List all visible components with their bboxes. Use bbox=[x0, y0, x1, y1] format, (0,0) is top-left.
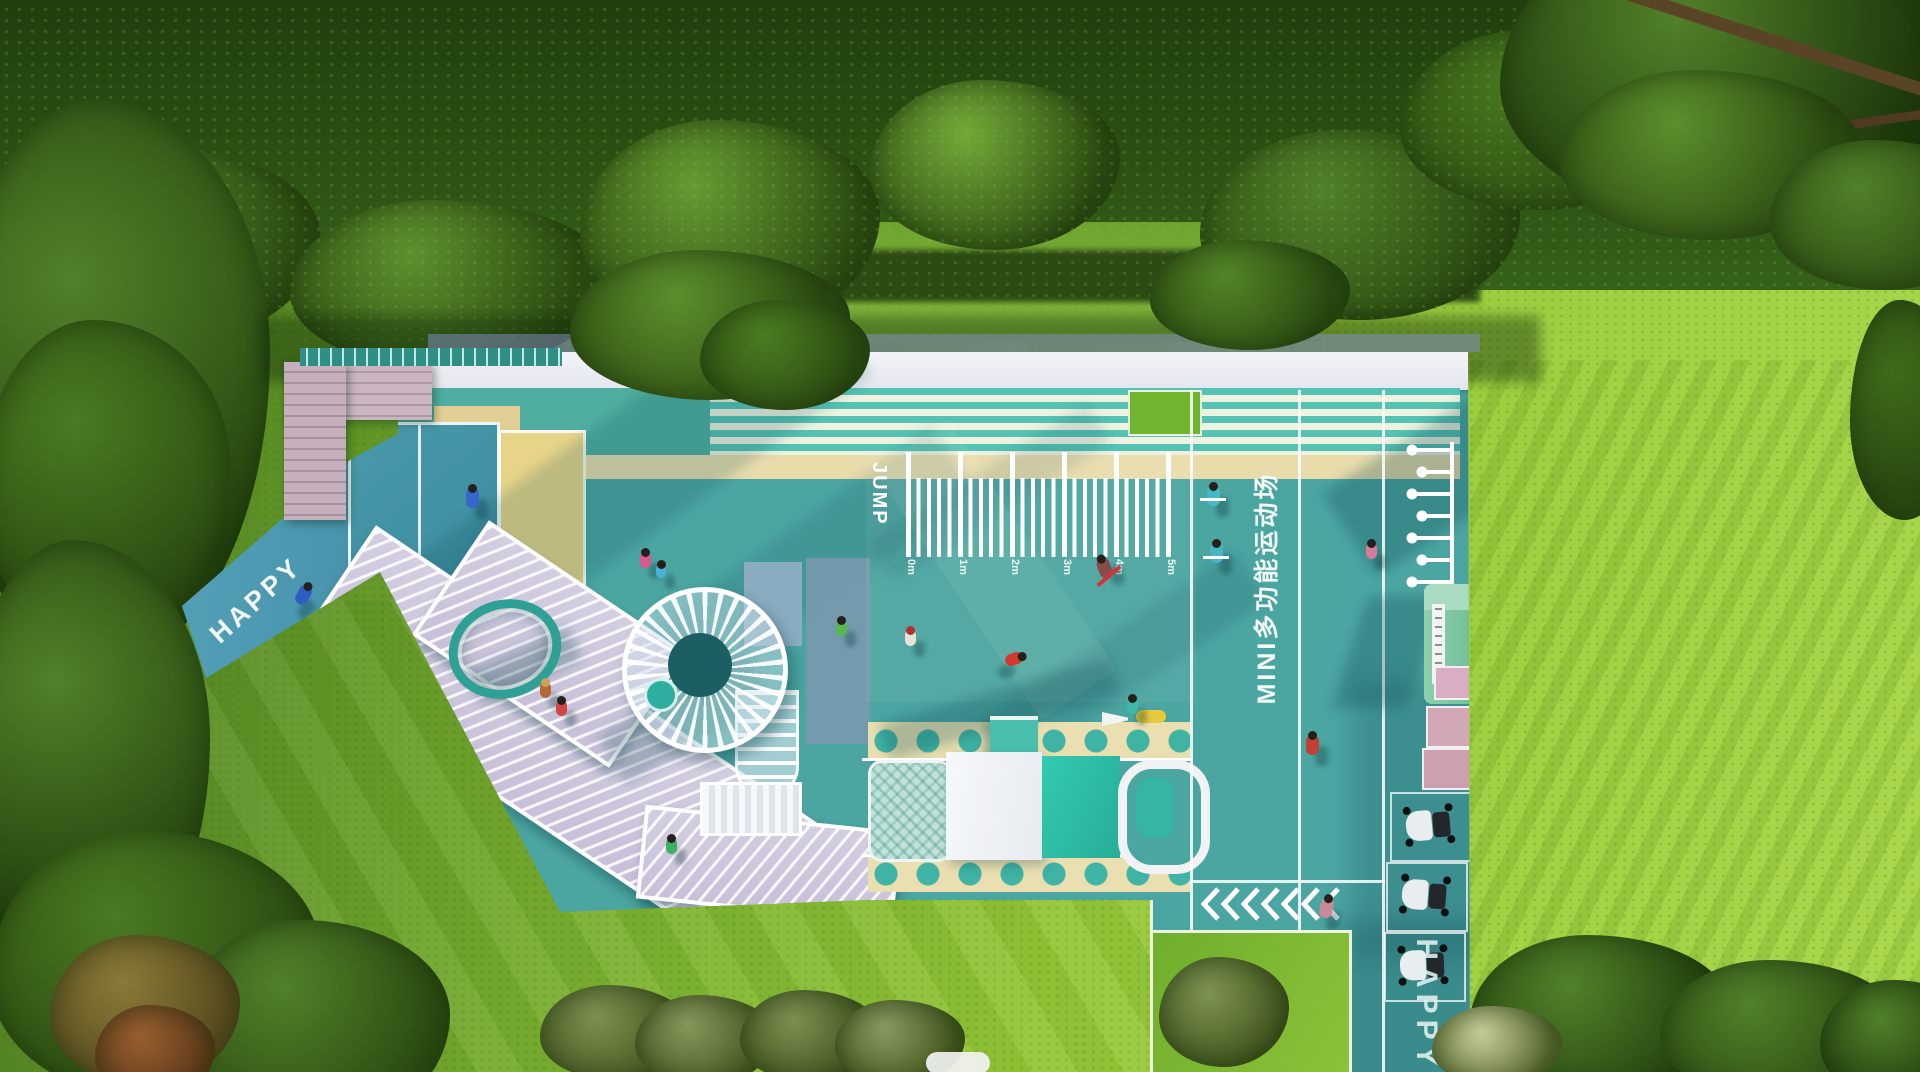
person-figure bbox=[1127, 698, 1138, 714]
field-name-marking: MINI多功能运动场 bbox=[1247, 453, 1277, 723]
ruler-tick-label: 5m bbox=[1165, 559, 1177, 581]
stroller-slot bbox=[1390, 792, 1472, 862]
person-figure bbox=[1210, 543, 1223, 563]
person-figure bbox=[836, 620, 847, 636]
lane-line-horizontal bbox=[1190, 880, 1385, 883]
ruler-tick-label: 2m bbox=[1009, 559, 1021, 581]
person-figure bbox=[666, 838, 677, 854]
shrub-cluster bbox=[1159, 957, 1289, 1067]
person-figure bbox=[556, 700, 567, 716]
slide-landing-pad bbox=[700, 782, 802, 836]
lane-line bbox=[1298, 390, 1301, 930]
person-figure bbox=[1306, 735, 1319, 755]
train-loop-car bbox=[1136, 778, 1174, 838]
person-figure bbox=[1366, 543, 1377, 559]
pink-mat bbox=[1426, 706, 1476, 748]
person-figure bbox=[656, 564, 666, 578]
playground-aerial-scene: 0m 1m 2m 3m 4m 5m JUMP MINI多功能运动场 bbox=[0, 0, 1920, 1072]
train-car-teal bbox=[1042, 756, 1120, 858]
pullup-bars-icon bbox=[1396, 438, 1458, 596]
serrated-fence bbox=[300, 348, 562, 366]
person-figure bbox=[1207, 486, 1220, 506]
jump-ruler: 0m 1m 2m 3m 4m 5m bbox=[906, 452, 1172, 602]
ruler-tick-labels: 0m 1m 2m 3m 4m 5m bbox=[906, 564, 1172, 598]
stroller-icon bbox=[1405, 806, 1454, 844]
person-figure bbox=[905, 630, 916, 646]
person-figure bbox=[466, 488, 479, 508]
bike-handlebar bbox=[1200, 498, 1226, 501]
spiral-slide-center bbox=[668, 633, 732, 697]
round-play-table bbox=[644, 678, 678, 712]
train-car-grid bbox=[868, 760, 952, 862]
grass-patch bbox=[1150, 930, 1352, 1072]
ruler-tick-label: 3m bbox=[1061, 559, 1073, 581]
pink-mat bbox=[1422, 748, 1472, 790]
person-figure bbox=[540, 682, 551, 698]
ruler-short-bars bbox=[906, 478, 1172, 557]
bike-handlebar bbox=[1203, 556, 1229, 559]
ruler-tick-label: 1m bbox=[957, 559, 969, 581]
kiosk-counter bbox=[1434, 666, 1472, 700]
yellow-toy bbox=[1136, 710, 1166, 723]
gray-mat bbox=[806, 558, 870, 744]
wood-deck-left bbox=[284, 362, 346, 520]
watermark-blob bbox=[926, 1052, 990, 1072]
jump-label: JUMP bbox=[866, 462, 890, 546]
patch-border-line bbox=[1150, 900, 1153, 934]
person-figure bbox=[640, 552, 651, 568]
lane-line bbox=[1190, 390, 1193, 930]
train-canopy-white bbox=[946, 752, 1042, 860]
ruler-tick-label: 0m bbox=[905, 559, 917, 581]
